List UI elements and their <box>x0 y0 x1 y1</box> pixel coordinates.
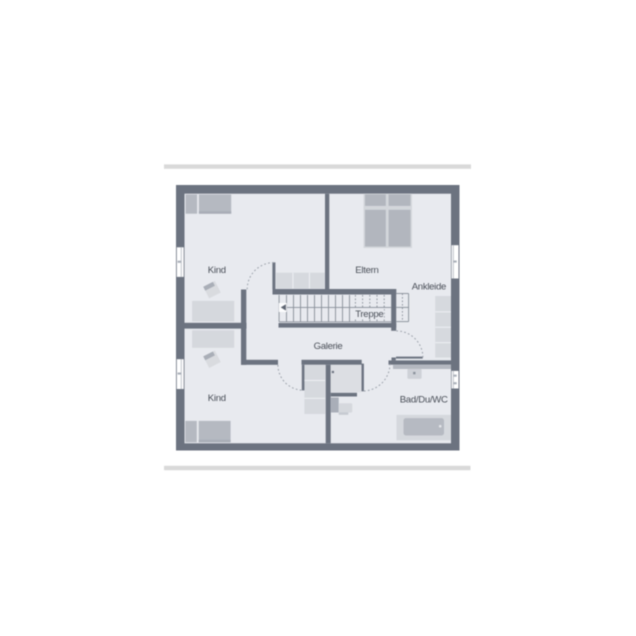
svg-text:Kind: Kind <box>208 265 226 276</box>
svg-text:Bad/Du/WC: Bad/Du/WC <box>400 395 448 406</box>
svg-text:Galerie: Galerie <box>314 341 343 352</box>
svg-text:Kind: Kind <box>208 393 226 404</box>
svg-text:Ankleide: Ankleide <box>412 281 446 292</box>
svg-text:Eltern: Eltern <box>355 265 378 276</box>
svg-text:Treppe: Treppe <box>355 309 383 320</box>
